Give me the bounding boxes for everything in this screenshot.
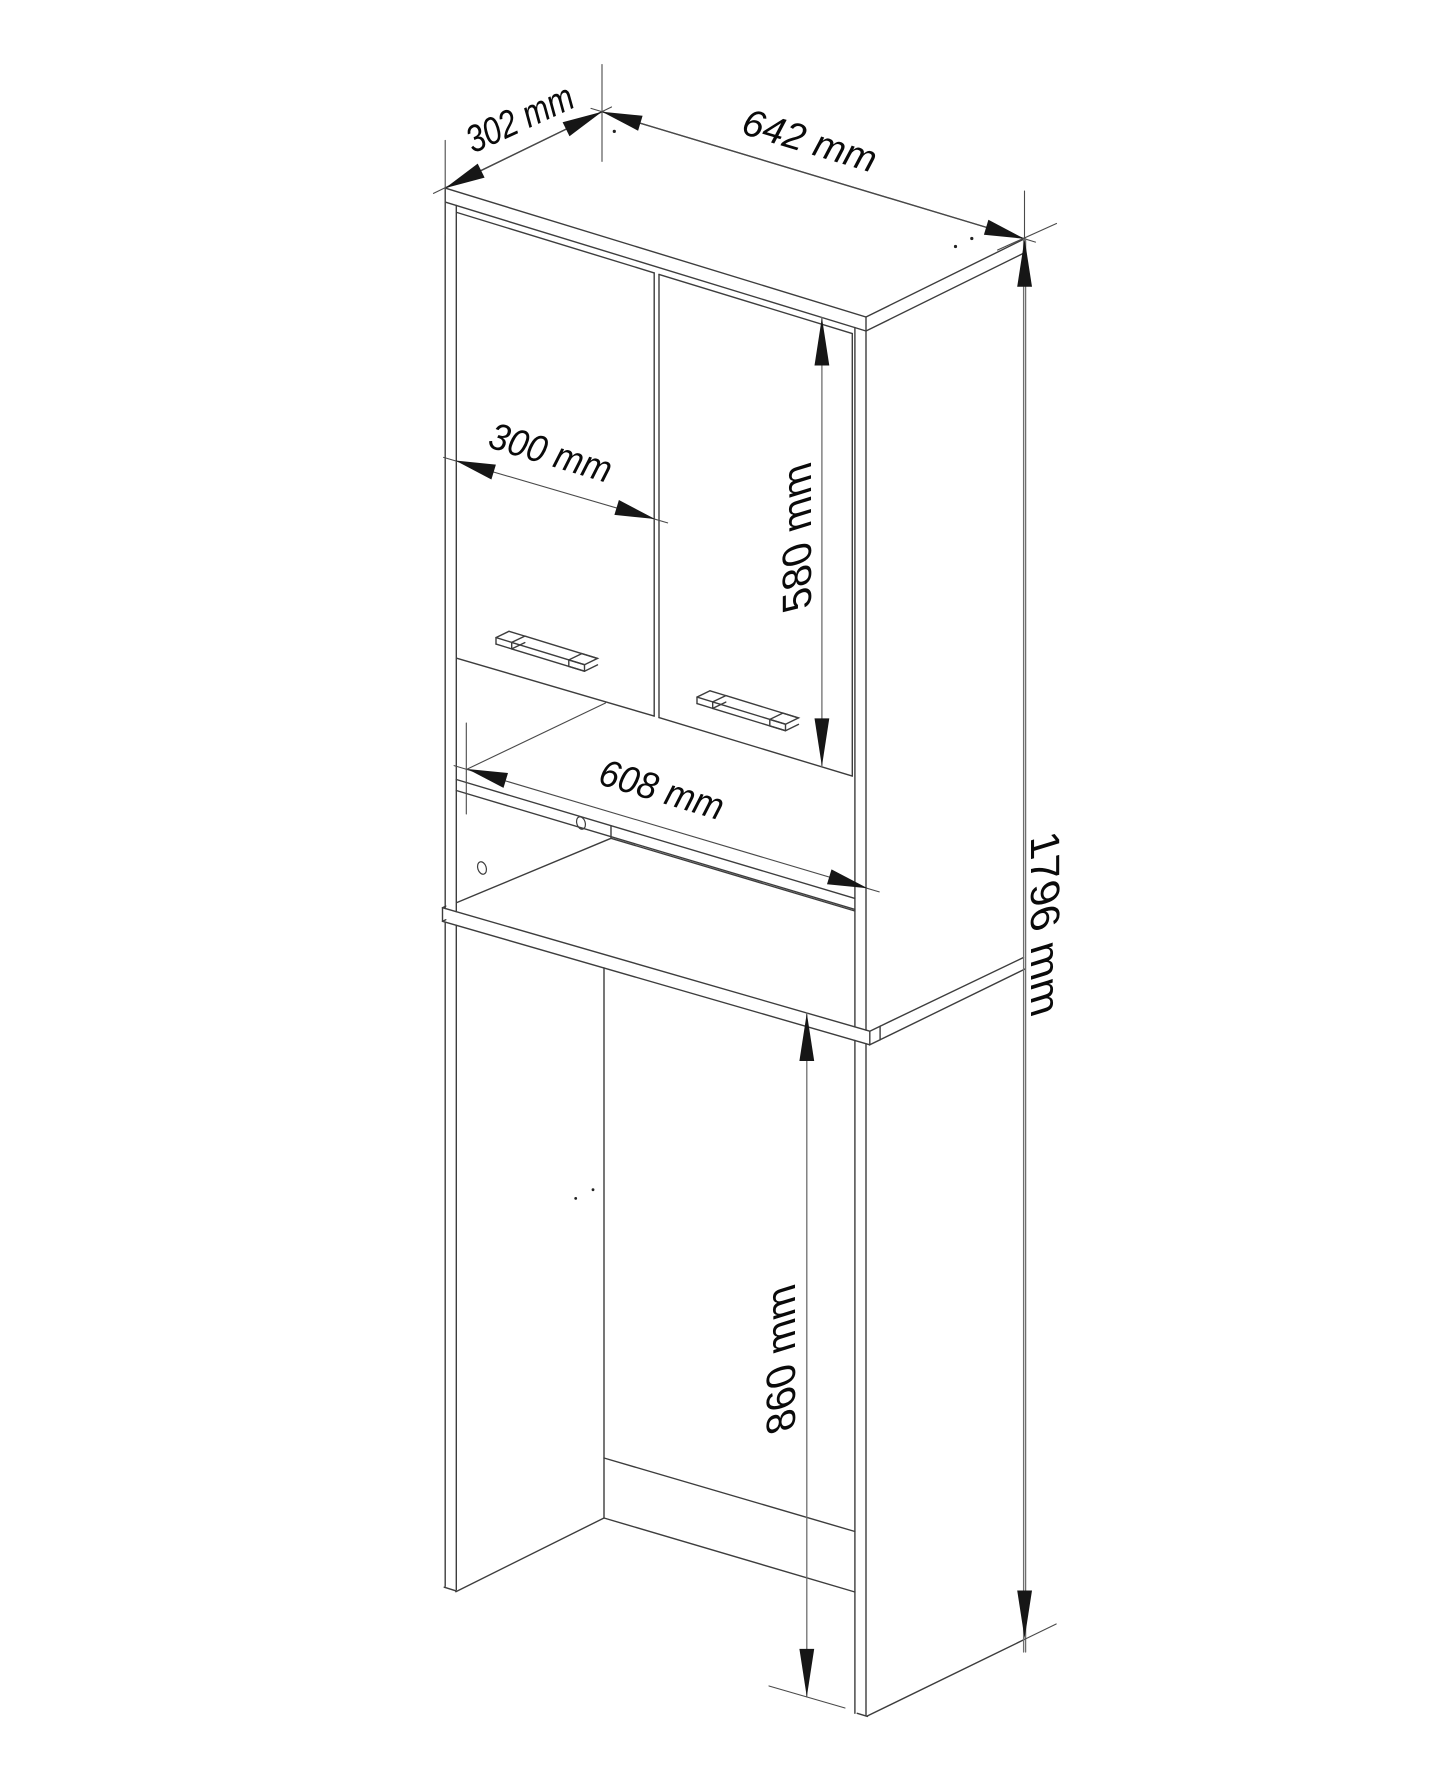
svg-text:580 mm: 580 mm bbox=[774, 457, 820, 618]
svg-text:608 mm: 608 mm bbox=[594, 752, 729, 829]
svg-text:302 mm: 302 mm bbox=[459, 76, 580, 161]
svg-text:860 mm: 860 mm bbox=[758, 1279, 804, 1440]
svg-text:300 mm: 300 mm bbox=[484, 415, 617, 491]
svg-text:1796 mm: 1796 mm bbox=[1022, 826, 1068, 1022]
svg-text:642 mm: 642 mm bbox=[737, 102, 881, 182]
